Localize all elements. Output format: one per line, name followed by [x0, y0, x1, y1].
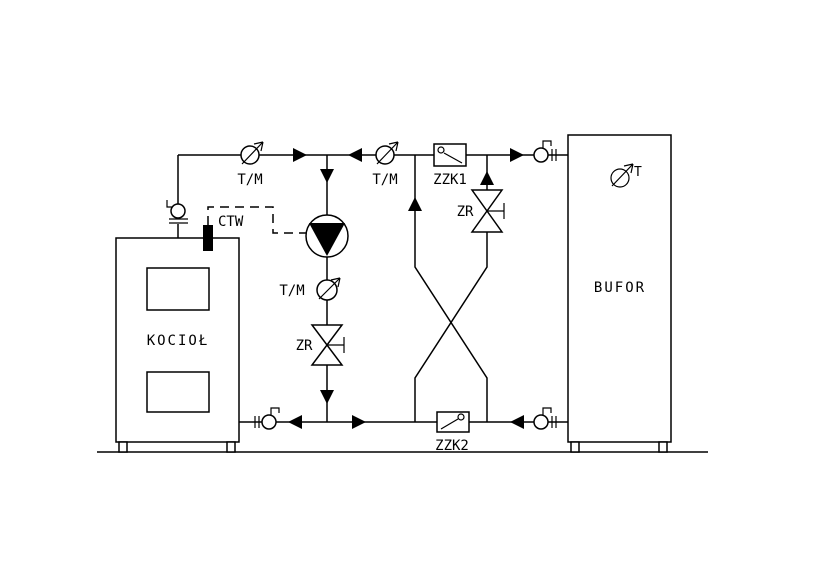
gauge-boiler-supply: T/M: [237, 142, 263, 188]
zzk2-label: ZZK2: [435, 438, 469, 454]
valve-zr-pump-line: ZR: [296, 325, 344, 365]
boiler: KOCIOŁ: [116, 238, 239, 452]
schematic-drawing: KOCIOŁ BUFOR T CTW T/M: [0, 0, 824, 583]
gauge-mixed-supply: T/M: [372, 142, 398, 188]
air-vent: [167, 200, 188, 223]
zr-body-top-icon: [472, 190, 502, 211]
flow-arrow-crossover-up-icon: [408, 197, 422, 211]
buffer-temp-sensor-label: T: [634, 165, 642, 180]
valve-zzk1: ZZK1: [433, 144, 467, 188]
buffer-label: BUFOR: [594, 280, 646, 296]
boiler-foot-left: [119, 442, 127, 452]
zr-pump-line-label: ZR: [296, 338, 313, 354]
boiler-door-lower: [147, 372, 209, 412]
flow-arrow-to-buffer-icon: [510, 148, 524, 162]
air-vent-flag-icon: [167, 200, 172, 207]
flow-arrow-bypass-up-icon: [480, 171, 494, 185]
flow-arrow-branch-down-icon: [320, 390, 334, 404]
flow-arrow-return-right-icon: [352, 415, 366, 429]
buffer-tank: BUFOR T: [568, 135, 671, 452]
air-vent-icon: [171, 204, 185, 218]
zr-body-bottom-icon: [472, 211, 502, 232]
valve-zzk2: ZZK2: [435, 412, 469, 454]
shutoff-valve-buffer-return: [534, 408, 556, 429]
shutoff-valve-buffer-supply: [534, 141, 556, 162]
boiler-foot-right: [227, 442, 235, 452]
ball-valve-icon: [534, 148, 548, 162]
gauge-dial-icon: [317, 280, 337, 300]
ctw-label: CTW: [218, 214, 244, 230]
flow-arrow-supply-right-icon: [293, 148, 307, 162]
circulation-pump: [306, 215, 348, 257]
boiler-door-upper: [147, 268, 209, 310]
buffer-foot-left: [571, 442, 579, 452]
gauge-boiler-supply-label: T/M: [237, 172, 262, 188]
ctw-sensor-probe-icon: [203, 225, 213, 251]
buffer-foot-right: [659, 442, 667, 452]
zzk1-label: ZZK1: [433, 172, 467, 188]
flow-arrow-return-left-icon: [288, 415, 302, 429]
flow-arrow-supply-left-icon: [348, 148, 362, 162]
gauge-pump-outlet: T/M: [279, 278, 340, 300]
valve-handle-icon: [543, 408, 551, 415]
ball-valve-icon: [262, 415, 276, 429]
valve-handle-icon: [271, 408, 279, 415]
flow-arrow-from-buffer-icon: [510, 415, 524, 429]
piping-schematic: KOCIOŁ BUFOR T CTW T/M: [0, 0, 824, 583]
gauge-pump-outlet-label: T/M: [279, 283, 304, 299]
air-vent-union-icon: [169, 219, 188, 223]
valve-handle-icon: [543, 141, 551, 148]
zr-body-bottom-icon: [312, 345, 342, 365]
zr-body-top-icon: [312, 325, 342, 345]
flow-arrow-pump-down-icon: [320, 169, 334, 183]
boiler-label: KOCIOŁ: [147, 333, 210, 349]
zr-bypass-label: ZR: [457, 204, 474, 220]
gauge-mixed-supply-label: T/M: [372, 172, 397, 188]
ball-valve-icon: [534, 415, 548, 429]
shutoff-valve-boiler-return: [255, 408, 279, 429]
valve-zr-bypass: ZR: [457, 190, 504, 232]
